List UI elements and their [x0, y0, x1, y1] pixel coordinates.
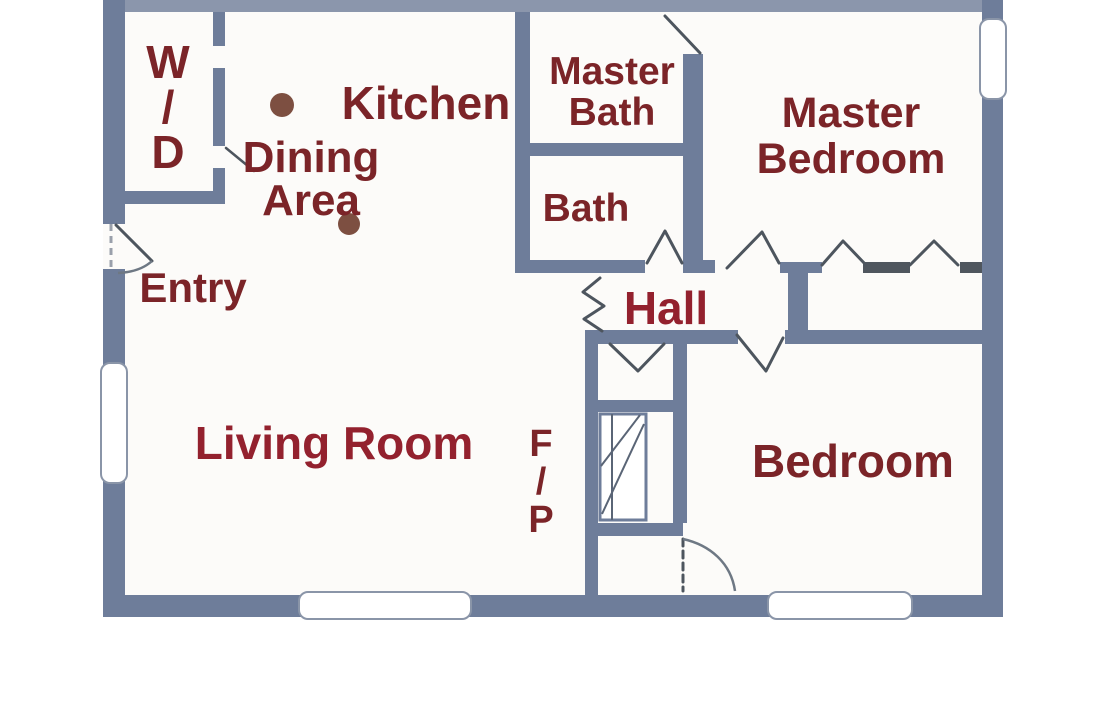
- room-label-kitchen: Kitchen: [342, 80, 511, 126]
- entry-door-leaf: [116, 225, 152, 261]
- room-label-bedroom: Bedroom: [752, 438, 954, 484]
- linen-closet-door-swing: [610, 344, 664, 371]
- bath-door-swing: [647, 231, 682, 263]
- room-label-wd: W / D: [146, 40, 189, 175]
- room-label-hall: Hall: [624, 285, 708, 331]
- bedroom-door-swing: [737, 335, 783, 371]
- hall-folding-door: [583, 278, 604, 331]
- passage-door-arc: [683, 539, 735, 591]
- room-label-master-bedroom: Master Bedroom: [757, 90, 946, 182]
- master-closet-bifold-left: [822, 241, 866, 265]
- room-label-master-bath: Master Bath: [549, 51, 675, 133]
- fireplace-symbol: [600, 414, 646, 520]
- room-label-bath: Bath: [543, 189, 630, 228]
- floor-plan-image: W / D Kitchen Dining Area Master Bath Ba…: [0, 0, 1116, 720]
- master-bath-door-leaf: [665, 16, 700, 53]
- master-bedroom-door-swing: [727, 232, 779, 268]
- room-label-living-room: Living Room: [195, 420, 474, 466]
- room-label-fireplace: F / P: [528, 425, 553, 539]
- room-label-entry: Entry: [139, 267, 246, 309]
- master-closet-bifold-right: [910, 241, 958, 265]
- room-label-dining-area: Dining Area: [243, 136, 380, 222]
